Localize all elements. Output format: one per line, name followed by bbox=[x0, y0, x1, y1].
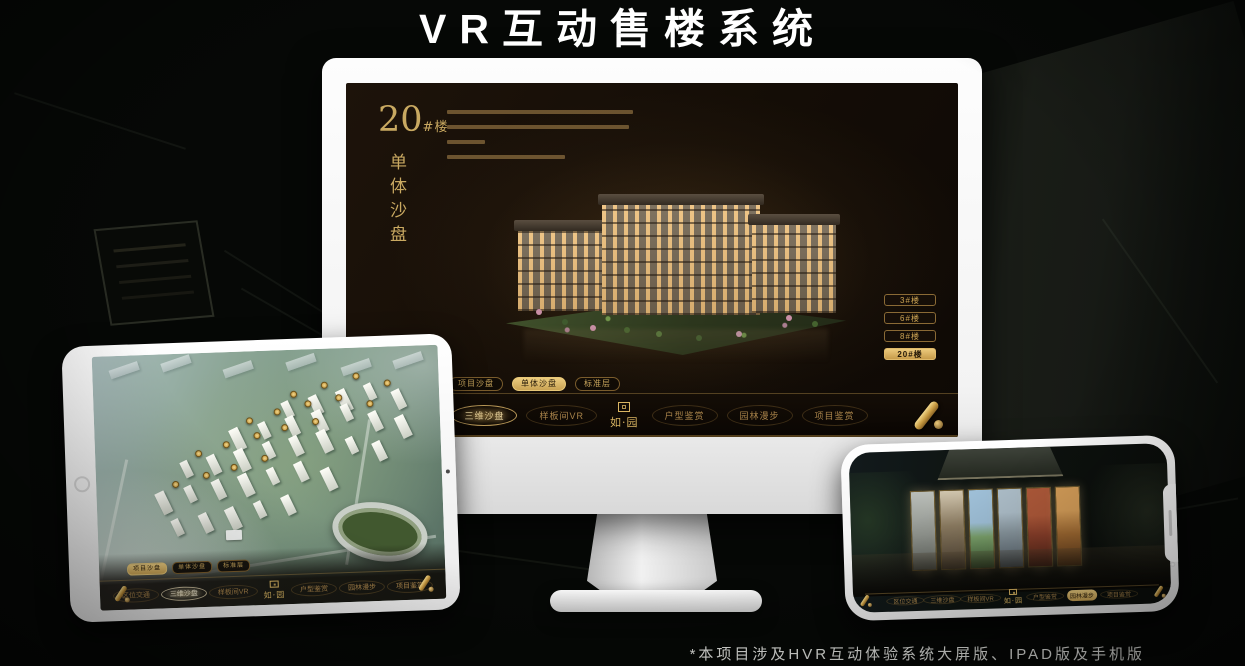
phone-notch bbox=[1163, 484, 1178, 562]
tablet-subtab-project-sandbox[interactable]: 项目沙盘 bbox=[127, 562, 167, 575]
aerial-building bbox=[320, 467, 339, 492]
logo-emblem-icon bbox=[269, 580, 278, 587]
tablet-home-button[interactable] bbox=[74, 476, 91, 493]
building-number-marker[interactable] bbox=[230, 464, 237, 471]
building-number-marker[interactable] bbox=[172, 481, 179, 488]
aerial-building bbox=[160, 354, 191, 372]
aerial-buildings bbox=[92, 345, 438, 357]
tablet-camera-icon bbox=[446, 469, 450, 473]
aerial-building bbox=[363, 382, 378, 401]
building-left-wing bbox=[518, 229, 610, 311]
nav-item-floorplans[interactable]: 户型鉴赏 bbox=[656, 404, 714, 427]
tablet-subtab-standard-floor[interactable]: 标准层 bbox=[217, 559, 250, 572]
aerial-building bbox=[183, 485, 198, 504]
building-number-marker[interactable] bbox=[254, 432, 261, 439]
building-number-marker[interactable] bbox=[246, 417, 253, 424]
scroll-icon[interactable] bbox=[111, 584, 130, 603]
building-main-block bbox=[602, 203, 760, 315]
map-label-tag bbox=[226, 530, 242, 541]
monitor-stand-neck bbox=[587, 512, 717, 594]
aerial-building bbox=[224, 506, 243, 531]
building-button-3[interactable]: 3#楼 bbox=[884, 294, 936, 306]
aerial-building bbox=[109, 361, 140, 379]
scroll-icon[interactable] bbox=[859, 594, 872, 607]
subtab-standard-floor[interactable]: 标准层 bbox=[575, 377, 620, 391]
phone-camera-icon bbox=[1170, 562, 1175, 567]
logo-emblem-icon bbox=[1009, 588, 1017, 594]
building-button-8[interactable]: 8#楼 bbox=[884, 330, 936, 342]
aerial-building bbox=[390, 388, 407, 410]
building-3d-render bbox=[506, 171, 846, 366]
building-button-20[interactable]: 20#楼 bbox=[884, 348, 936, 360]
nav-item-project-gallery[interactable]: 项目鉴赏 bbox=[806, 404, 864, 427]
phone-nav-garden-walk[interactable]: 园林漫步 bbox=[1067, 589, 1097, 601]
phone-device: 区位交通 三维沙盘 样板间VR 如·园 户型鉴赏 园林漫步 项目鉴赏 bbox=[840, 435, 1179, 621]
aerial-building bbox=[197, 512, 214, 534]
tablet-nav-showroom-vr[interactable]: 样板间VR bbox=[213, 583, 254, 600]
building-number-marker[interactable] bbox=[312, 418, 319, 425]
ruyuan-logo: 如·园 bbox=[610, 402, 639, 430]
subtab-project-sandbox[interactable]: 项目沙盘 bbox=[449, 377, 503, 391]
aerial-building bbox=[210, 479, 227, 501]
building-right-wing bbox=[752, 223, 836, 313]
building-number-marker[interactable] bbox=[195, 450, 202, 457]
subtab-single-sandbox[interactable]: 单体沙盘 bbox=[512, 377, 566, 391]
phone-ruyuan-logo: 如·园 bbox=[1003, 588, 1023, 606]
phone-nav-location[interactable]: 区位交通 bbox=[890, 594, 920, 606]
tablet-screen: 项目沙盘 单体沙盘 标准层 区位交通 三维沙盘 样板间VR 如·园 户型鉴赏 园… bbox=[92, 345, 447, 611]
heading-vertical-label: 单体沙盘 bbox=[384, 153, 409, 249]
aerial-building bbox=[394, 414, 413, 439]
building-number-marker[interactable] bbox=[304, 400, 311, 407]
building-number-marker[interactable] bbox=[290, 390, 297, 397]
tablet-nav-garden-walk[interactable]: 园林漫步 bbox=[343, 578, 382, 595]
building-number-marker[interactable] bbox=[383, 379, 390, 386]
building-number-marker[interactable] bbox=[274, 409, 281, 416]
building-number-marker[interactable] bbox=[281, 424, 288, 431]
aerial-building bbox=[170, 518, 185, 537]
building-number-marker[interactable] bbox=[203, 472, 210, 479]
building-selector: 3#楼 6#楼 8#楼 20#楼 bbox=[884, 294, 936, 366]
building-number-marker[interactable] bbox=[352, 373, 359, 380]
building-button-6[interactable]: 6#楼 bbox=[884, 312, 936, 324]
logo-emblem-icon bbox=[618, 402, 630, 412]
phone-screen: 区位交通 三维沙盘 样板间VR 如·园 户型鉴赏 园林漫步 项目鉴赏 bbox=[849, 443, 1172, 613]
aerial-building bbox=[266, 467, 281, 486]
scroll-icon[interactable] bbox=[908, 398, 946, 432]
nav-item-showroom-vr[interactable]: 样板间VR bbox=[530, 404, 593, 427]
aerial-building bbox=[280, 494, 297, 516]
aerial-building bbox=[155, 491, 174, 516]
background-certificate-frame bbox=[93, 220, 214, 326]
stage: VR互动售楼系统 20#楼 单体沙盘 3#楼 bbox=[0, 0, 1245, 666]
building-number-marker[interactable] bbox=[223, 441, 230, 448]
aerial-building bbox=[223, 360, 254, 378]
building-heading: 20#楼 单体沙盘 bbox=[378, 101, 448, 249]
scroll-icon[interactable] bbox=[415, 574, 434, 593]
page-title: VR互动售楼系统 bbox=[0, 2, 1245, 56]
nav-item-3d-sandbox[interactable]: 三维沙盘 bbox=[455, 404, 513, 427]
building-number-marker[interactable] bbox=[335, 394, 342, 401]
tablet-ruyuan-logo: 如·园 bbox=[263, 580, 285, 601]
aerial-building bbox=[293, 460, 310, 482]
aerial-building bbox=[392, 351, 423, 369]
phone-nav-3d-sandbox[interactable]: 三维沙盘 bbox=[927, 593, 957, 605]
scroll-icon[interactable] bbox=[1152, 585, 1165, 598]
sandbox-subtabs: 项目沙盘 单体沙盘 标准层 bbox=[449, 377, 620, 391]
aerial-building bbox=[179, 459, 194, 478]
ceiling-beam bbox=[937, 446, 1064, 480]
aerial-building bbox=[315, 429, 334, 454]
monitor-stand-base bbox=[550, 590, 762, 612]
phone-nav-floorplans[interactable]: 户型鉴赏 bbox=[1030, 590, 1060, 602]
aerial-building bbox=[285, 353, 316, 371]
aerial-building bbox=[288, 435, 305, 457]
building-number-marker[interactable] bbox=[321, 382, 328, 389]
footnote-text: *本项目涉及HVR互动体验系统大屏版、IPAD版及手机版 bbox=[690, 643, 1145, 664]
heading-suffix: #楼 bbox=[423, 120, 449, 135]
aerial-building bbox=[344, 436, 359, 455]
aerial-building bbox=[237, 472, 256, 497]
tablet-subtab-single-sandbox[interactable]: 单体沙盘 bbox=[172, 561, 212, 574]
building-number-marker[interactable] bbox=[261, 455, 268, 462]
tablet-nav-floorplans[interactable]: 户型鉴赏 bbox=[295, 580, 334, 597]
aerial-building bbox=[253, 500, 268, 519]
tablet-device: 项目沙盘 单体沙盘 标准层 区位交通 三维沙盘 样板间VR 如·园 户型鉴赏 园… bbox=[61, 333, 460, 622]
aerial-building bbox=[371, 440, 388, 462]
tablet-nav-3d-sandbox[interactable]: 三维沙盘 bbox=[165, 585, 204, 602]
phone-speaker-icon bbox=[1169, 510, 1173, 536]
phone-nav-project-gallery[interactable]: 项目鉴赏 bbox=[1104, 588, 1134, 600]
building-number-marker[interactable] bbox=[367, 400, 374, 407]
nav-item-garden-walk[interactable]: 园林漫步 bbox=[731, 404, 789, 427]
phone-nav-showroom-vr[interactable]: 样板间VR bbox=[964, 592, 997, 604]
heading-number: 20#楼 bbox=[378, 101, 448, 147]
trees-decoration bbox=[536, 309, 542, 315]
